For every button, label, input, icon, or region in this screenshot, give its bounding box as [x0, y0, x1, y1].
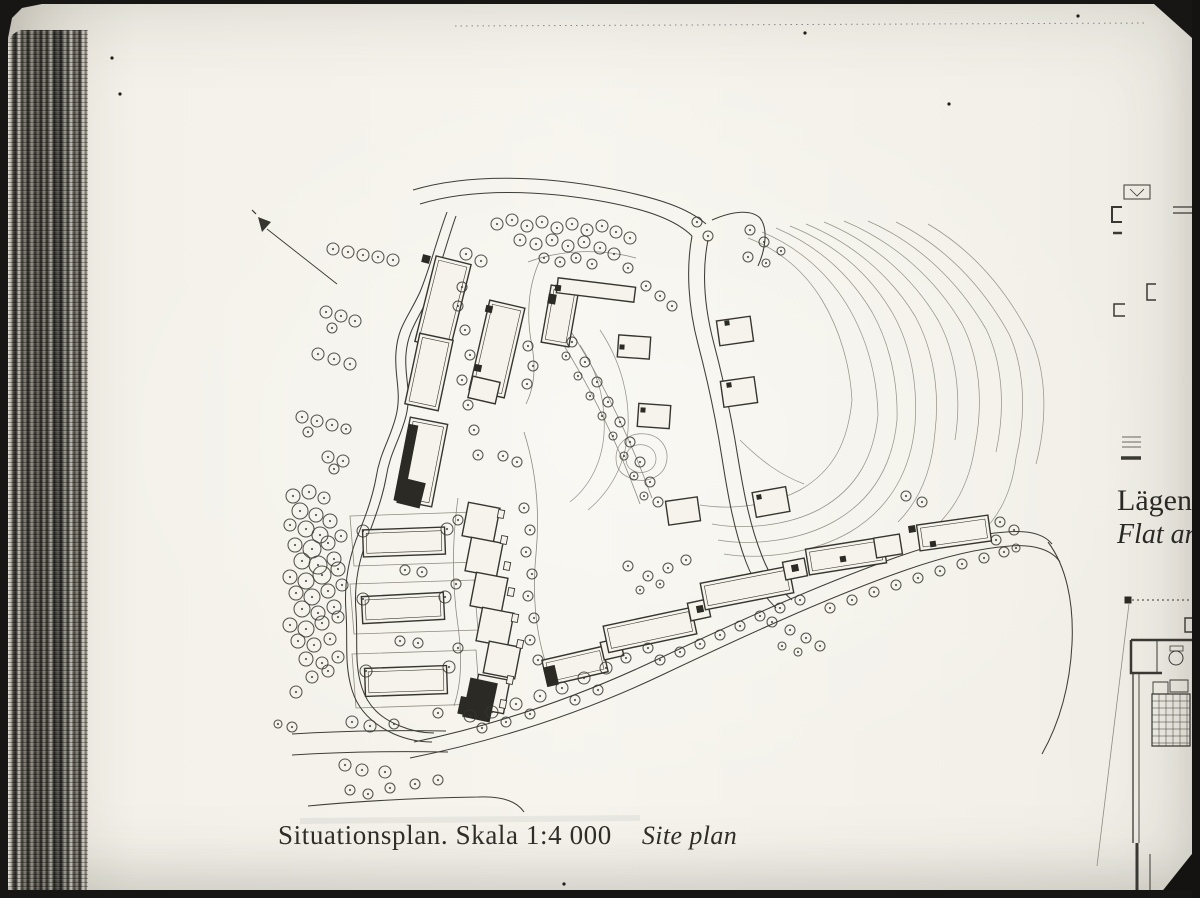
adjacent-page-title-english: Flat an	[1117, 519, 1199, 551]
building	[637, 403, 671, 428]
building	[874, 534, 903, 558]
building	[483, 641, 521, 679]
caption-swedish: Situationsplan. Skala 1:4 000	[278, 820, 612, 851]
building	[665, 497, 700, 525]
building	[752, 487, 790, 518]
site-plan-svg	[0, 0, 1200, 898]
page-gap-shadow	[1192, 0, 1200, 898]
book-photo: Lägenh Flat an Situationsplan. Skala 1:4…	[0, 0, 1200, 898]
building	[603, 607, 697, 652]
contour-lines-layer	[570, 221, 1044, 556]
caption-english: Site plan	[642, 821, 737, 851]
trees-layer	[274, 214, 1020, 799]
adjacent-page-title-swedish: Lägenh	[1117, 484, 1200, 518]
building	[363, 527, 446, 557]
building	[470, 572, 508, 611]
building	[465, 537, 503, 576]
building	[476, 607, 514, 646]
building	[716, 316, 753, 345]
building	[462, 502, 500, 541]
building	[405, 333, 453, 410]
building	[361, 592, 444, 623]
building	[365, 666, 448, 697]
dust-specks-layer	[110, 14, 1079, 885]
north-arrow	[252, 210, 337, 284]
building	[917, 515, 992, 551]
caption: Situationsplan. Skala 1:4 000 Site plan	[278, 820, 737, 851]
building	[720, 377, 757, 407]
